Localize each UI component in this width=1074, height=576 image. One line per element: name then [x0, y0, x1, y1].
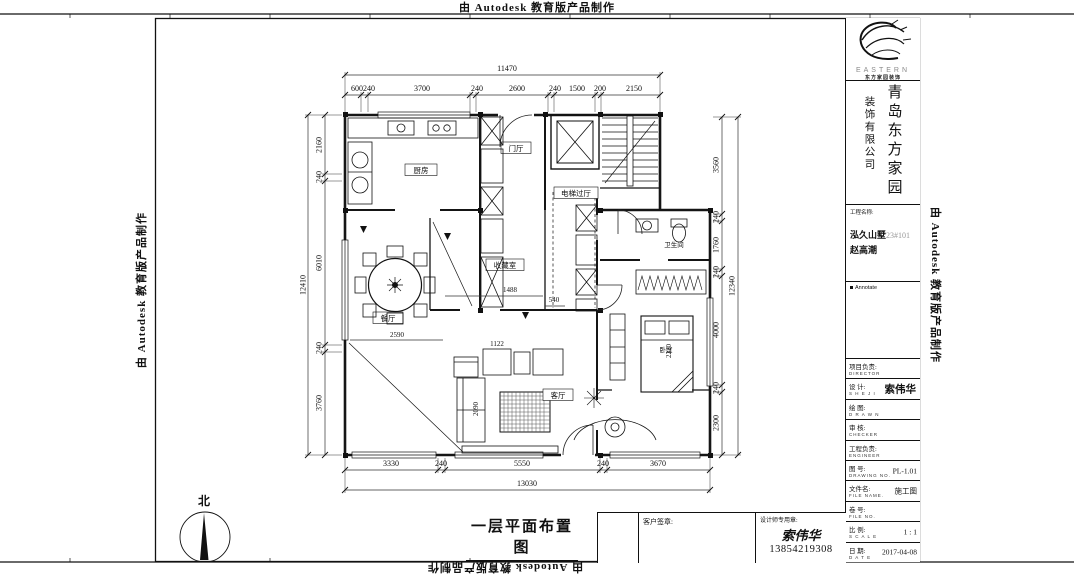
svg-text:240: 240	[435, 459, 447, 468]
project-unit-no: 23#101	[886, 231, 910, 240]
project-name-block: 工程名称: 泓久山墅23#101 赵高潮	[846, 205, 920, 282]
kitchen-counter	[348, 118, 478, 204]
project-name: 泓久山墅23#101	[850, 228, 916, 241]
svg-text:5550: 5550	[514, 459, 530, 468]
signature-spacer-cell	[598, 513, 639, 563]
svg-text:3670: 3670	[650, 459, 666, 468]
svg-text:240: 240	[597, 459, 609, 468]
room-foyer: 门厅	[509, 144, 524, 153]
room-bathroom: 卫生间	[664, 240, 684, 249]
svg-text:240: 240	[315, 171, 324, 183]
svg-text:2090: 2090	[472, 402, 480, 417]
svg-text:2600: 2600	[509, 84, 525, 93]
dimension-text: 11470 600 240 3700 240 2600 240 1500 200…	[299, 64, 737, 488]
svg-text:1122: 1122	[490, 340, 504, 348]
designer-phone: 13854219308	[760, 544, 842, 555]
autodesk-stamp-right: 由 Autodesk 教育版产品制作	[930, 185, 944, 385]
eastern-logo-icon	[848, 18, 918, 62]
designer-name: 索伟华	[885, 382, 917, 397]
svg-text:2150: 2150	[626, 84, 642, 93]
signature-table: 客户签章: 设计师专用章: 索伟华 13854219308	[597, 512, 846, 563]
room-living: 客厅	[551, 390, 566, 400]
svg-text:4000: 4000	[712, 322, 721, 338]
dim-bottom-total: 13030	[517, 479, 537, 488]
autodesk-stamp-top: 由 Autodesk 教育版产品制作	[0, 0, 1074, 13]
svg-text:240: 240	[549, 84, 561, 93]
row-director: 项目负责: DIRECTOR	[846, 359, 920, 379]
date-value: 2017-04-08	[882, 548, 917, 557]
bedroom-furniture	[610, 219, 706, 392]
row-designer: 设 计: S H E J I 索伟华	[846, 379, 920, 399]
title-block-rows: 项目负责: DIRECTOR 设 计: S H E J I 索伟华 绘 图: D…	[846, 359, 920, 562]
dim-left-total: 12410	[299, 275, 308, 295]
svg-text:2160: 2160	[315, 137, 324, 153]
svg-text:2300: 2300	[712, 415, 721, 431]
customer-signature-cell: 客户签章:	[639, 513, 756, 563]
svg-text:2590: 2590	[390, 331, 405, 339]
designer-signature-name: 索伟华	[760, 525, 842, 544]
dim-right-total: 12340	[728, 276, 737, 296]
cabinets	[481, 117, 597, 311]
svg-text:240: 240	[315, 342, 324, 354]
annotate-block: Annotate	[846, 282, 920, 359]
company-name-block: 装饰有限公司 青岛东方家园	[846, 81, 920, 205]
svg-text:3760: 3760	[315, 395, 324, 411]
svg-text:6010: 6010	[315, 255, 324, 271]
stairs-icon	[602, 116, 658, 186]
north-arrow-icon: 北	[180, 493, 230, 562]
company-name-main: 青岛东方家园	[884, 84, 905, 204]
svg-text:240: 240	[363, 84, 375, 93]
project-client: 赵高潮	[850, 243, 916, 256]
room-dining: 餐厅	[381, 314, 396, 323]
autodesk-stamp-bottom: 由 Autodesk 教育版产品制作	[415, 562, 595, 576]
project-name-cn: 泓久山墅	[850, 230, 886, 240]
row-scale: 比 例: S C A L E 1 : 1	[846, 522, 920, 542]
svg-text:600: 600	[351, 84, 363, 93]
living-furniture	[454, 349, 563, 453]
svg-text:1488: 1488	[503, 286, 518, 294]
drawing-number: PL-1.01	[893, 466, 917, 475]
customer-signature-label: 客户签章:	[643, 518, 673, 526]
sunroom	[574, 388, 656, 440]
title-block: EASTERN 东方家园装饰 装饰有限公司 青岛东方家园 工程名称: 泓久山墅2…	[845, 18, 920, 562]
drawing-sheet: 11470 600 240 3700 240 2600 240 1500 200…	[0, 0, 1074, 576]
row-drawing-no: 图 号: DRAWING NO. PL-1.01	[846, 461, 920, 481]
svg-text:1500: 1500	[569, 84, 585, 93]
room-bedroom: 卧室	[660, 345, 674, 354]
room-collection: 收藏室	[494, 260, 517, 270]
designer-signature-cell: 设计师专用章: 索伟华 13854219308	[756, 513, 846, 563]
svg-text:200: 200	[594, 84, 606, 93]
company-name-sub: 装饰有限公司	[862, 84, 877, 204]
room-elevator-hall: 电梯过厅	[561, 188, 591, 198]
svg-text:3330: 3330	[383, 459, 399, 468]
svg-text:3700: 3700	[414, 84, 430, 93]
svg-text:240: 240	[471, 84, 483, 93]
row-drawn: 绘 图: D R A W N	[846, 400, 920, 420]
svg-text:3560: 3560	[712, 157, 721, 173]
north-label: 北	[198, 493, 210, 508]
svg-text:240: 240	[712, 382, 721, 394]
scale-value: 1 : 1	[904, 527, 917, 536]
brand-subtitle: 东方家园装饰	[846, 74, 920, 81]
svg-text:1760: 1760	[712, 237, 721, 253]
elevator-icon	[551, 115, 599, 169]
bullet-icon	[850, 286, 853, 289]
autodesk-stamp-left: 由 Autodesk 教育版产品制作	[133, 190, 147, 390]
row-file-name: 文件名: FILE NAME. 施工图	[846, 481, 920, 501]
dim-top-total: 11470	[497, 64, 517, 73]
project-label: 工程名称:	[850, 208, 916, 216]
row-engineer: 工程负责: ENGINEER	[846, 441, 920, 461]
svg-text:240: 240	[712, 266, 721, 278]
row-checker: 审 核: CHECKER	[846, 420, 920, 440]
svg-text:540: 540	[549, 296, 560, 304]
designer-seal-label: 设计师专用章:	[760, 515, 842, 524]
room-kitchen: 厨房	[414, 165, 429, 175]
brand-name: EASTERN	[846, 67, 920, 74]
annotate-label: Annotate	[855, 285, 877, 291]
row-file-no: 卷 号: FILE NO.	[846, 502, 920, 522]
drawing-title: 一层平面布置图	[466, 515, 578, 562]
company-logo: EASTERN 东方家园装饰	[846, 18, 920, 81]
svg-text:240: 240	[712, 211, 721, 223]
row-date: 日 期: D A T E 2017-04-08	[846, 543, 920, 562]
